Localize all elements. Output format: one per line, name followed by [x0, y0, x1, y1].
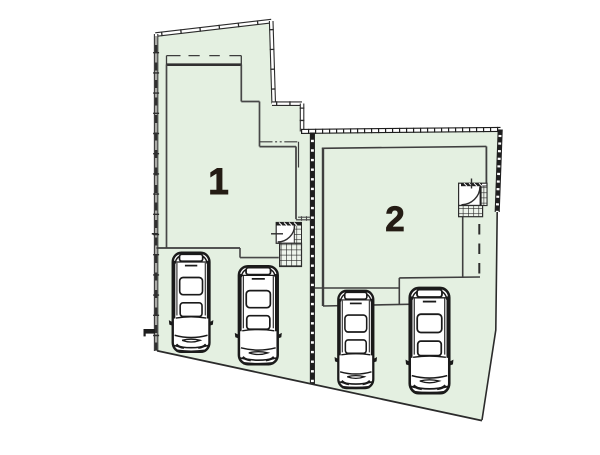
svg-text:1: 1 [208, 161, 229, 202]
svg-text:2: 2 [385, 200, 404, 239]
